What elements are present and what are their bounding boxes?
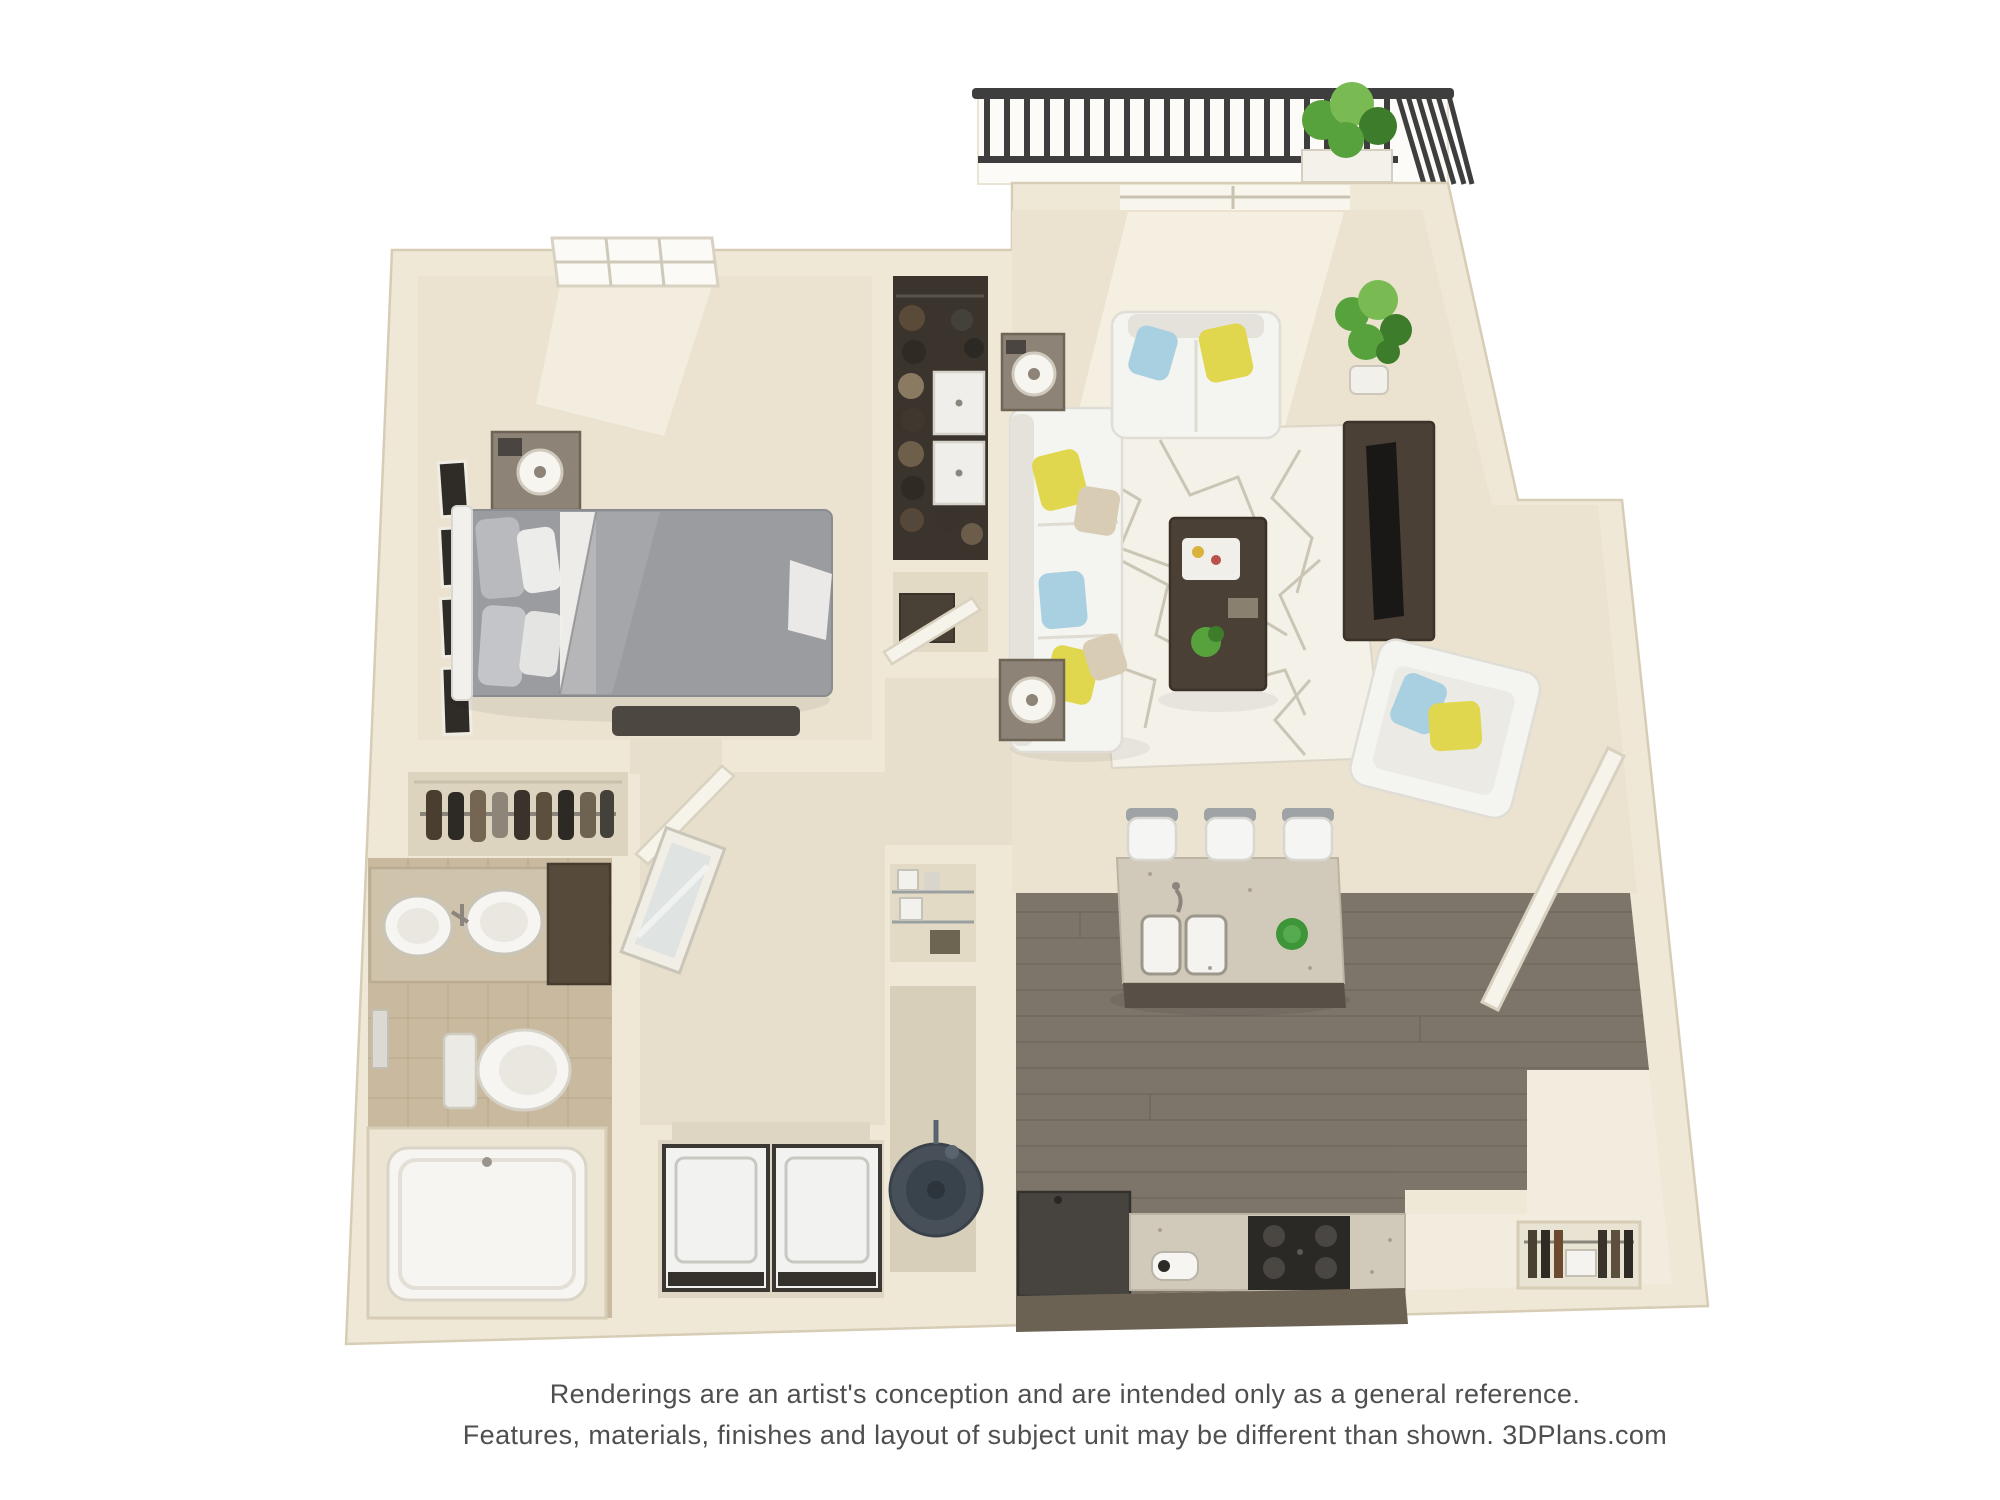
sofa-pillow-blue: [1038, 570, 1089, 630]
towel: [372, 1010, 388, 1068]
sliding-glass-door: [1120, 185, 1350, 210]
kitchen-appliance: [1152, 1252, 1198, 1280]
bedroom-door-opening: [630, 738, 722, 774]
bar-stool: [1204, 808, 1256, 860]
coffee-table: [1158, 518, 1278, 712]
coffee-table-tray: [1182, 538, 1240, 580]
linen-hanging-clothes: [426, 790, 614, 842]
bathroom-cabinet: [548, 864, 610, 984]
queen-bed: [452, 506, 832, 700]
end-table-north: [1002, 334, 1064, 410]
pantry-item: [924, 872, 940, 890]
range-stove: [1248, 1216, 1350, 1290]
bar-stool: [1282, 808, 1334, 860]
nightstand: [492, 432, 580, 510]
washer: [664, 1146, 768, 1290]
bedroom-window: [552, 238, 718, 286]
pantry-item: [898, 870, 918, 890]
bed-throw: [788, 560, 832, 640]
bed-pillow: [518, 610, 564, 678]
pantry-item: [900, 898, 922, 920]
kitchen-counter: [1130, 1214, 1405, 1290]
kitchen-island: [1117, 858, 1346, 1008]
refrigerator: [1018, 1192, 1130, 1296]
foot-bench: [612, 706, 800, 736]
tub-drain: [482, 1157, 492, 1167]
bed-pillow: [475, 516, 526, 600]
pantry-item: [930, 930, 960, 954]
floor-plan-rendering: [0, 0, 2000, 1500]
coat-closet: [1518, 1222, 1640, 1288]
disclaimer-line-1: Renderings are an artist's conception an…: [130, 1374, 2000, 1415]
chair-pillow-yellow: [1428, 700, 1483, 752]
disclaimer-text: Renderings are an artist's conception an…: [0, 1374, 2000, 1456]
vanity: [370, 868, 562, 982]
coat-closet-box: [1566, 1250, 1596, 1276]
bar-stools: [1126, 808, 1334, 860]
bed-pillow: [477, 605, 526, 688]
sofa-pillow-tan: [1073, 485, 1122, 537]
disclaimer-line-2: Features, materials, finishes and layout…: [130, 1415, 2000, 1456]
tv-console: [1344, 422, 1434, 640]
floor-plan-page: Renderings are an artist's conception an…: [0, 0, 2000, 1500]
bathtub: [368, 1128, 606, 1318]
bar-stool: [1126, 808, 1178, 860]
laundry-closet: [664, 1146, 880, 1290]
loveseat: [1112, 312, 1280, 438]
toilet: [444, 1030, 570, 1110]
laundry-door-opening: [672, 1122, 870, 1142]
end-table-south: [1000, 660, 1064, 740]
dryer: [774, 1146, 880, 1290]
